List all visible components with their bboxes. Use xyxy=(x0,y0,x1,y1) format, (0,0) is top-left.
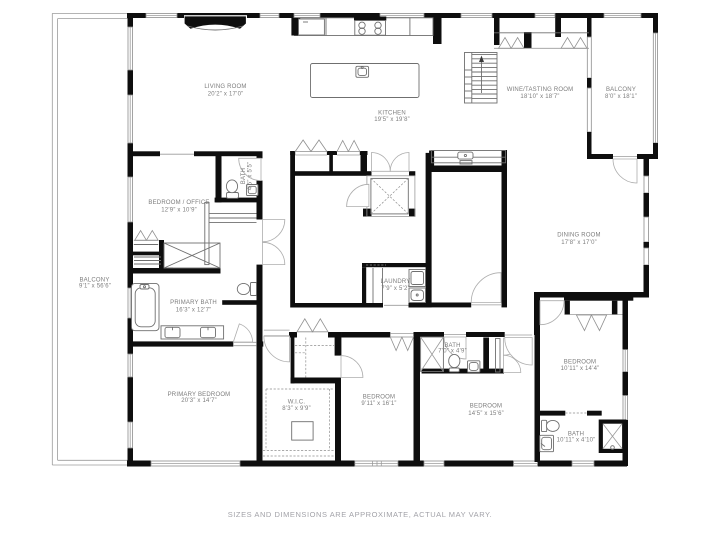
svg-text:20’2” x 17’0”: 20’2” x 17’0” xyxy=(208,91,244,97)
svg-text:BEDROOM / OFFICE: BEDROOM / OFFICE xyxy=(148,200,209,206)
svg-text:17’8” x 17’0”: 17’8” x 17’0” xyxy=(561,240,597,246)
svg-text:LAUNDRY: LAUNDRY xyxy=(381,279,411,285)
svg-text:SIZES AND DIMENSIONS ARE APPRO: SIZES AND DIMENSIONS ARE APPROXIMATE, AC… xyxy=(228,510,493,519)
svg-text:BEDROOM: BEDROOM xyxy=(363,394,395,400)
svg-text:KITCHEN: KITCHEN xyxy=(378,110,406,116)
svg-text:BATH: BATH xyxy=(568,431,584,437)
svg-text:BATH: BATH xyxy=(241,168,247,184)
svg-text:WINE/TASTING ROOM: WINE/TASTING ROOM xyxy=(507,87,574,93)
svg-text:PRIMARY BATH: PRIMARY BATH xyxy=(170,300,217,306)
svg-text:8’3” x 9’9”: 8’3” x 9’9” xyxy=(282,406,311,412)
svg-text:7’9” x 5’2”: 7’9” x 5’2” xyxy=(381,286,410,292)
svg-text:9’11” x 16’1”: 9’11” x 16’1” xyxy=(361,401,396,407)
svg-text:12’9” x 10’9”: 12’9” x 10’9” xyxy=(161,207,197,213)
svg-text:BEDROOM: BEDROOM xyxy=(564,359,596,365)
svg-text:18’10” x 18’7”: 18’10” x 18’7” xyxy=(520,94,559,100)
svg-text:10’11” x 4’10”: 10’11” x 4’10” xyxy=(557,437,596,443)
svg-text:9’1” x 56’6”: 9’1” x 56’6” xyxy=(79,284,111,290)
svg-text:DINING ROOM: DINING ROOM xyxy=(557,232,601,238)
svg-text:8’0” x 18’1”: 8’0” x 18’1” xyxy=(605,94,637,100)
svg-text:W.I.C.: W.I.C. xyxy=(288,399,306,405)
svg-text:BALCONY: BALCONY xyxy=(79,277,109,283)
svg-text:20’3” x 14’7”: 20’3” x 14’7” xyxy=(181,398,217,404)
svg-text:4’5” x 5’5”: 4’5” x 5’5” xyxy=(248,162,254,191)
svg-text:7’0” x 4’9”: 7’0” x 4’9” xyxy=(438,348,467,354)
svg-text:LIVING ROOM: LIVING ROOM xyxy=(204,84,246,90)
svg-text:14’5” x 15’6”: 14’5” x 15’6” xyxy=(468,411,504,417)
svg-text:BALCONY: BALCONY xyxy=(606,87,636,93)
svg-text:19’5” x 19’8”: 19’5” x 19’8” xyxy=(374,117,410,123)
svg-text:BEDROOM: BEDROOM xyxy=(470,403,502,409)
svg-text:10’11” x 14’4”: 10’11” x 14’4” xyxy=(561,366,600,372)
svg-text:16’3” x 12’7”: 16’3” x 12’7” xyxy=(176,307,212,313)
svg-text:PRIMARY BEDROOM: PRIMARY BEDROOM xyxy=(168,392,231,398)
